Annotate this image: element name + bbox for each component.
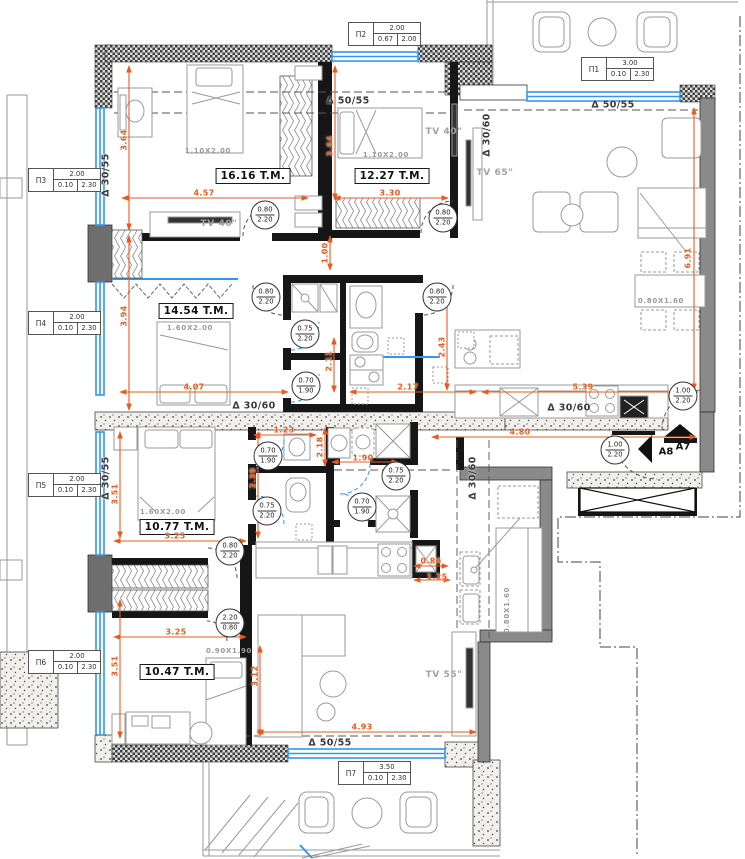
door-size-tag: 0.701.90 (292, 372, 321, 401)
door-size-tag: 0.752.20 (253, 497, 282, 526)
dimension-label: 1.25 (427, 573, 448, 582)
beam-label: Δ 50/55 (308, 738, 351, 749)
floor-plan-canvas: П22.00 0.672.00 П13.00 0.102.30 П32.00 0… (0, 0, 745, 859)
door-size-tag: 1.002.20 (601, 436, 630, 465)
furniture-size-label: 0.80X1.60 (503, 587, 511, 633)
dimension-label: 3.64 (120, 130, 129, 151)
dimension-label: 5.39 (573, 383, 594, 392)
window-tag-p6: П62.00 0.102.30 (28, 650, 101, 674)
dimension-label: 4.80 (510, 428, 531, 437)
door-size-tag: 0.802.20 (429, 204, 458, 233)
door-size-tag: 0.752.20 (291, 320, 320, 349)
dimension-label: 2.11 (325, 351, 334, 372)
beam-label: Δ 30/60 (232, 401, 275, 412)
elevator-shaft (580, 488, 695, 512)
dimension-label: 3.30 (380, 189, 401, 198)
section-mark-a8: A8 (659, 447, 674, 458)
door-size-tag: 0.802.20 (216, 537, 245, 566)
room-area-label: 16.16 T.M. (216, 168, 291, 184)
dimension-label: 1.00 (321, 243, 330, 264)
door-size-tag: 0.701.90 (348, 493, 377, 522)
tv-label: TV 40" (200, 219, 237, 229)
window-tag-p2: П22.00 0.672.00 (348, 22, 421, 46)
dimension-label: 2.43 (438, 337, 447, 358)
room-area-label: 10.47 T.M. (140, 664, 215, 680)
beam-label: Δ 30/55 (101, 153, 112, 196)
dimension-label: 4.93 (352, 723, 373, 732)
window-tag-p1: П13.00 0.102.30 (581, 57, 654, 81)
furniture-size-label: 1.10X2.00 (363, 151, 409, 159)
closet-rail (112, 284, 232, 298)
dimension-label: 4.07 (184, 383, 205, 392)
dimension-label: 3.64 (326, 136, 335, 157)
door-size-tag: 0.802.20 (251, 201, 280, 230)
window-tag-p4: П42.00 0.102.30 (28, 311, 101, 335)
room-area-label: 14.54 T.M. (159, 303, 234, 319)
beam-label: Δ 30/60 (468, 456, 479, 499)
dimension-label: 1.23 (274, 426, 295, 435)
tv-label: TV 40" (425, 127, 462, 137)
tv-label: TV 65" (476, 168, 513, 178)
dimension-label: 2.39 (249, 468, 258, 489)
dimension-label: 1.90 (353, 454, 374, 463)
beam-label: Δ 50/55 (326, 96, 369, 107)
dimension-label: 2.18 (316, 437, 325, 458)
dimension-label: 2.17 (398, 383, 419, 392)
dimension-label: 4.57 (194, 189, 215, 198)
beam-label: Δ 30/60 (547, 403, 590, 414)
section-mark-a7: A7 (676, 442, 691, 453)
window-tag-p3: П32.00 0.102.30 (28, 168, 101, 192)
door-size-tag: 0.802.20 (252, 283, 281, 312)
dimension-label: 3.94 (120, 306, 129, 327)
beam-label: Δ 30/60 (482, 113, 493, 156)
furniture-size-label: 0.80X1.60 (638, 297, 684, 305)
dimension-label: 6.91 (684, 248, 693, 269)
dimension-label: 0.86 (421, 557, 442, 566)
tv-label: TV 55" (425, 670, 462, 680)
dimension-label: 3.12 (251, 666, 260, 687)
room-area-label: 12.27 T.M. (355, 168, 430, 184)
furniture-size-label: 1.10X2.00 (185, 147, 231, 155)
door-size-tag: 0.752.20 (382, 462, 411, 491)
furniture-size-label: 1.60X2.00 (140, 508, 186, 516)
door-size-tag: 2.200.80 (216, 609, 245, 638)
dimension-label: 3.25 (165, 532, 186, 541)
window-tag-p5: П52.00 0.102.30 (28, 473, 101, 497)
window-tag-p7: П73.50 0.102.30 (338, 761, 411, 785)
furniture-size-label: 1.60X2.00 (167, 324, 213, 332)
beam-label: Δ 50/55 (591, 100, 634, 111)
dimension-label: 3.51 (111, 656, 120, 677)
door-size-tag: 0.802.20 (423, 283, 452, 312)
door-size-tag: 1.002.20 (669, 382, 698, 411)
dimension-label: 3.51 (111, 484, 120, 505)
furniture-size-label: 0.90X1.90 (206, 647, 252, 655)
dimension-label: 3.25 (166, 628, 187, 637)
door-size-tag: 0.701.90 (254, 442, 283, 471)
